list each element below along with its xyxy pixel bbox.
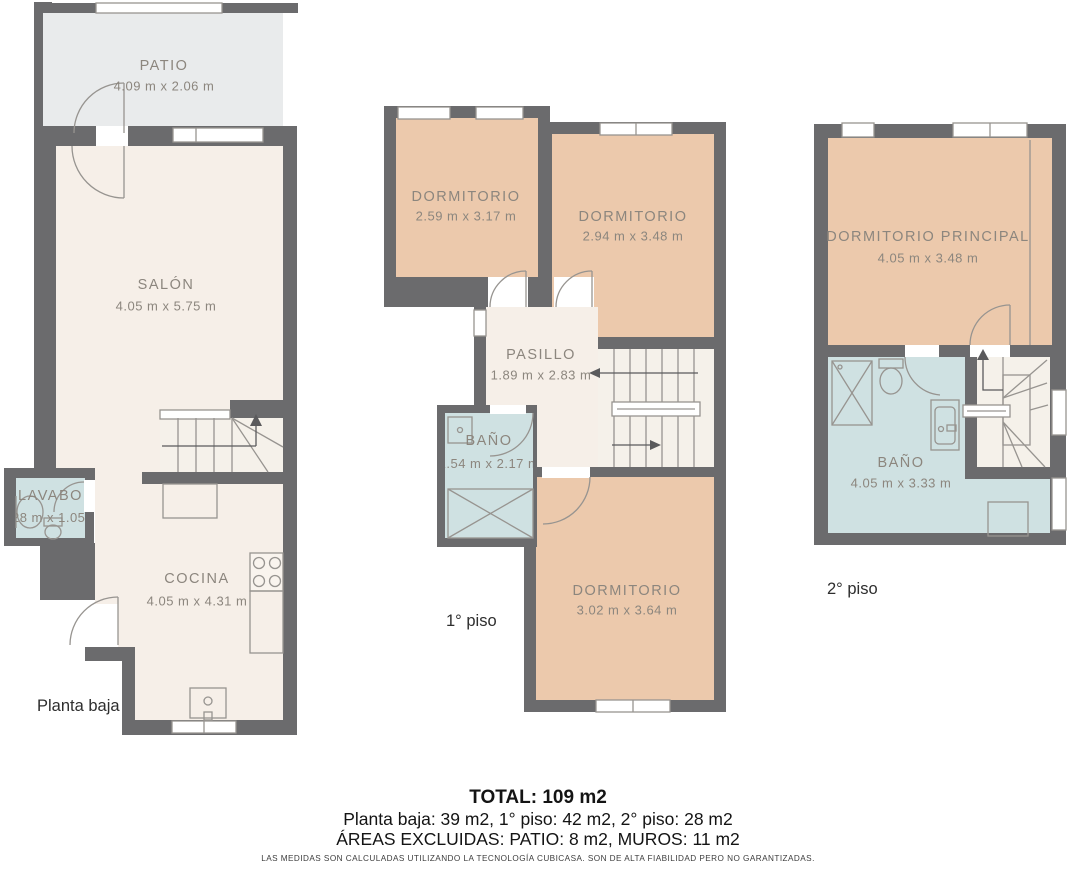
washer-icon xyxy=(190,688,226,720)
disclaimer-text: LAS MEDIDAS SON CALCULADAS UTILIZANDO LA… xyxy=(261,854,815,863)
stove-icon xyxy=(250,553,283,591)
room-dims-dormitorio-principal: 4.05 m x 3.48 m xyxy=(878,251,979,266)
room-label-pasillo: PASILLO xyxy=(506,347,576,363)
window xyxy=(474,310,486,336)
door-arc xyxy=(72,146,124,198)
room-label-banyo-1: BAÑO 1.54 m x 2.17 m xyxy=(445,413,533,503)
summary-total: TOTAL: 109 m2 xyxy=(469,787,607,809)
window xyxy=(476,107,523,119)
cabinet-icon xyxy=(988,502,1028,536)
room-label-banyo-2: BAÑO xyxy=(877,455,924,471)
shower-icon xyxy=(832,361,872,425)
door-opening xyxy=(84,480,95,512)
second-floor-details xyxy=(832,123,1066,536)
summary-per-floor: Planta baja: 39 m2, 1° piso: 42 m2, 2° p… xyxy=(343,809,733,830)
door-arc xyxy=(905,357,940,395)
floor-label-planta-baja: Planta baja xyxy=(37,697,120,716)
door-arc xyxy=(970,305,1010,345)
floor-label-1-piso: 1° piso xyxy=(446,612,497,631)
summary-excluded: ÁREAS EXCLUIDAS: PATIO: 8 m2, MUROS: 11 … xyxy=(336,829,740,850)
toilet-icon xyxy=(879,359,903,394)
room-label-dormitorio-principal: DORMITORIO PRINCIPAL xyxy=(826,229,1029,245)
floorplan-lineart xyxy=(0,0,1076,872)
counter-icon xyxy=(250,591,283,653)
window xyxy=(1052,478,1066,530)
stairs-icon xyxy=(589,349,700,467)
wall-segment xyxy=(142,472,283,484)
room-label-dormitorio-3: DORMITORIO xyxy=(573,583,682,599)
stairs-icon xyxy=(963,349,1048,467)
door-opening xyxy=(970,345,1010,357)
room-dims-dormitorio-2: 2.94 m x 3.48 m xyxy=(583,229,684,244)
room-dims-banyo-2: 4.05 m x 3.33 m xyxy=(851,476,952,491)
room-label-cocina: COCINA xyxy=(164,571,229,587)
ground-floor-details xyxy=(16,3,283,733)
room-label-dormitorio-2: DORMITORIO xyxy=(579,209,688,225)
window xyxy=(96,3,222,13)
window xyxy=(842,123,874,137)
room-dims-dormitorio-1: 2.59 m x 3.17 m xyxy=(416,209,517,224)
window xyxy=(1052,390,1066,435)
floor-plan-canvas: PATIO 4.09 m x 2.06 m SALÓN 4.05 m x 5.7… xyxy=(0,0,1076,872)
room-label-salon: SALÓN xyxy=(138,277,195,293)
sink-icon xyxy=(931,400,959,450)
room-label-lavabo: LAVABO 1.28 m x 1.05 m xyxy=(16,478,85,548)
door-opening xyxy=(488,277,528,307)
room-dims-pasillo: 1.89 m x 2.83 m xyxy=(491,368,592,383)
room-dims-cocina: 4.05 m x 4.31 m xyxy=(147,594,248,609)
door-opening xyxy=(542,467,590,478)
stair-railing xyxy=(160,410,230,419)
room-dims-salon: 4.05 m x 5.75 m xyxy=(116,299,217,314)
counter-icon xyxy=(163,484,217,518)
door-opening xyxy=(554,277,594,307)
floor-label-2-piso: 2° piso xyxy=(827,580,878,599)
arrow-right-icon xyxy=(650,440,661,450)
window xyxy=(398,107,450,119)
door-arc xyxy=(70,597,118,645)
room-label-dormitorio-1: DORMITORIO xyxy=(412,189,521,205)
door-arc xyxy=(543,477,590,524)
window xyxy=(173,128,263,142)
room-dims-patio: 4.09 m x 2.06 m xyxy=(114,79,215,94)
room-dims-dormitorio-3: 3.02 m x 3.64 m xyxy=(577,603,678,618)
stairs-icon xyxy=(162,414,283,472)
door-opening xyxy=(96,126,128,146)
door-opening xyxy=(905,345,939,357)
room-label-patio: PATIO xyxy=(140,58,189,74)
